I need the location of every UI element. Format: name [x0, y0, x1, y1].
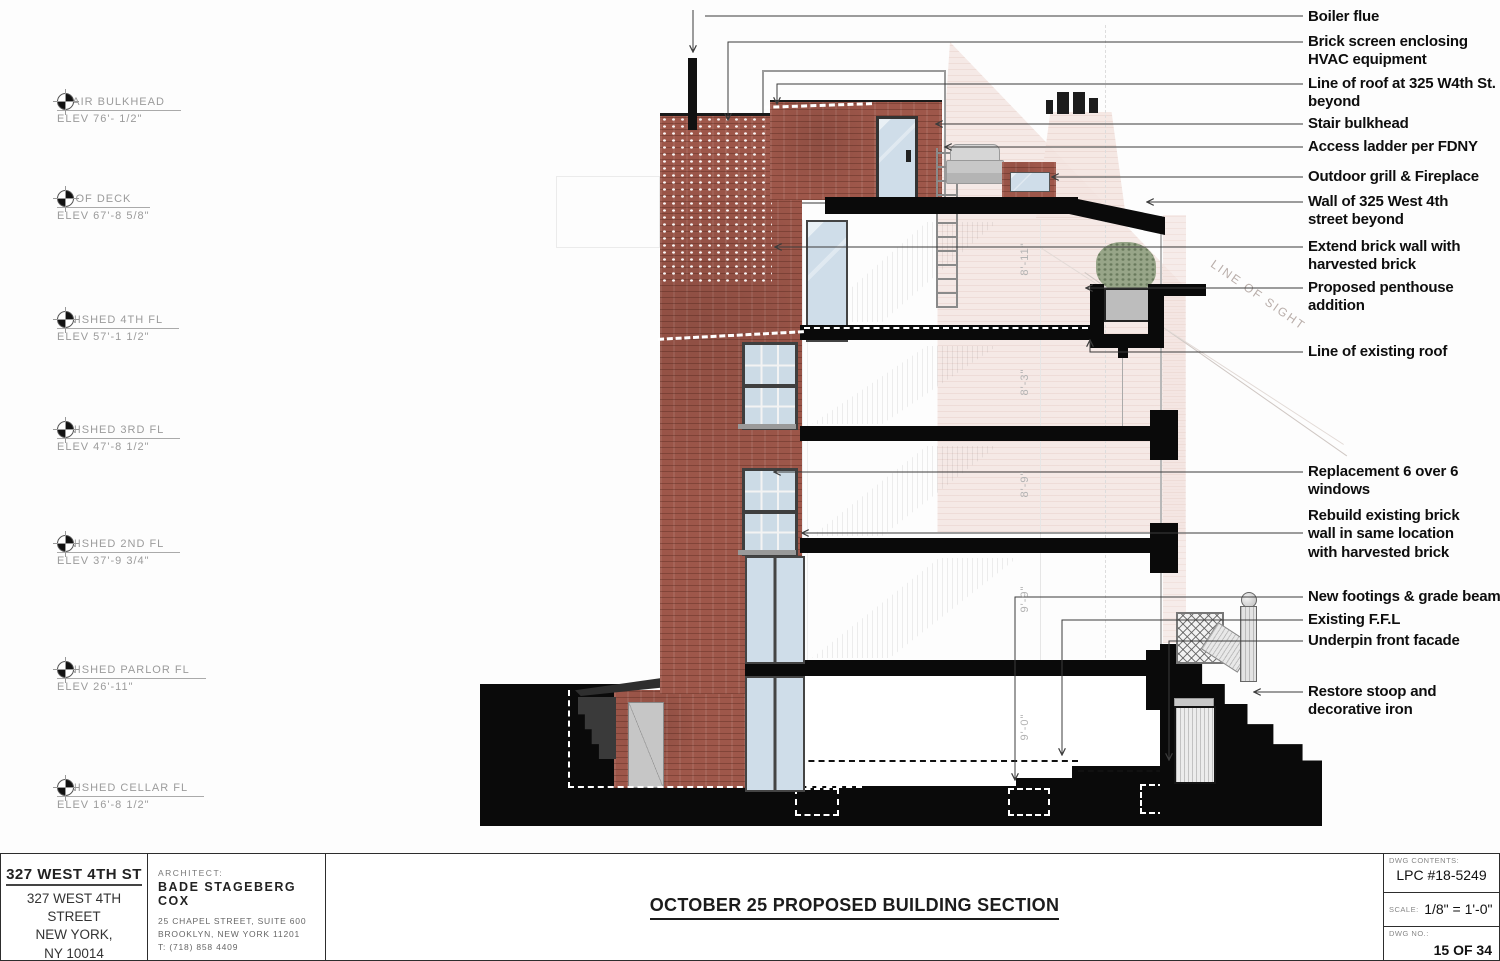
bulkhead-glass-door: [876, 116, 918, 202]
rear-cellar-door: [628, 702, 664, 788]
chimney-pot-icon: [1057, 92, 1069, 114]
scale-value: 1/8" = 1'-0": [1423, 899, 1494, 919]
penthouse-roof-arm: [1164, 284, 1206, 296]
elevation-marker: ROOF DECK ELEV 67'-8 5/8": [57, 181, 150, 222]
project-address: 327 WEST 4TH STREET NEW YORK, NY 10014: [1, 890, 147, 961]
drawing-sheet: LINE OF SIGHT: [0, 0, 1500, 961]
dwg-no-row: DWG NO.: 15 OF 34: [1384, 927, 1499, 960]
floor-height-dimension: 9'-9": [1019, 562, 1031, 636]
footing-box: [1008, 788, 1050, 816]
elevation-value: ELEV 76'- 1/2": [57, 111, 181, 125]
line-of-sight-label: LINE OF SIGHT: [1208, 257, 1308, 333]
elevation-marker: FINISHED PARLOR FL ELEV 26'-11": [57, 652, 206, 693]
elevation-value: ELEV 16'-8 1/2": [57, 797, 204, 811]
address-line: 327 WEST 4TH: [1, 890, 147, 908]
foundation-dashed-line: [568, 690, 570, 788]
architect-phone: T: (718) 858 4409: [158, 941, 325, 954]
elevation-label: FINISHED 4TH FL: [57, 314, 179, 329]
bearing-block: [1150, 410, 1178, 460]
elevation-marker: STAIR BULKHEAD ELEV 76'- 1/2": [57, 84, 181, 125]
elevation-datum-icon: [57, 421, 74, 438]
chimney-pot-icon: [1046, 100, 1053, 114]
annotation-label: Restore stoop and decorative iron: [1308, 683, 1500, 720]
elevation-value: ELEV 37'-9 3/4": [57, 553, 180, 567]
elevation-datum-icon: [57, 779, 74, 796]
elevation-value: ELEV 57'-1 1/2": [57, 329, 179, 343]
drawing-info-cell: DWG CONTENTS: LPC #18-5249 SCALE: 1/8" =…: [1384, 854, 1499, 960]
architect-address: 25 CHAPEL STREET, SUITE 600 BROOKLYN, NE…: [158, 915, 325, 953]
shrub: [1096, 242, 1156, 292]
dwg-contents-label: DWG CONTENTS:: [1389, 856, 1494, 865]
scale-row: SCALE: 1/8" = 1'-0": [1384, 893, 1499, 927]
drawing-title: OCTOBER 25 PROPOSED BUILDING SECTION: [650, 895, 1060, 920]
floor-height-dimension: 9'-0": [1019, 690, 1031, 764]
ffl-dashed-line: [778, 760, 1078, 762]
ffl-dashed-line: [1078, 770, 1172, 772]
annotation-label: New footings & grade beam: [1308, 588, 1500, 606]
window-sill: [738, 550, 796, 555]
elevation-value: ELEV 26'-11": [57, 679, 206, 693]
elevation-marker: FINISHED CELLAR FL ELEV 16'-8 1/2": [57, 770, 204, 811]
door-handle-icon: [906, 150, 911, 162]
elevation-marker: FINISHED 2ND FL ELEV 37'-9 3/4": [57, 526, 180, 567]
window-sill: [738, 424, 796, 429]
parlor-floor-slab: [745, 660, 1160, 676]
annotation-label: Line of existing roof: [1308, 343, 1500, 361]
neighbor-roof-outline: [556, 176, 660, 248]
planter: [1104, 288, 1152, 322]
architect-address-line: 25 CHAPEL STREET, SUITE 600: [158, 915, 325, 928]
annotation-label: Access ladder per FDNY: [1308, 138, 1500, 156]
third-floor-slab: [800, 538, 1156, 553]
annotation-label: Extend brick wall with harvested brick: [1308, 238, 1500, 275]
floor-height-dimension: 8'-11": [1019, 222, 1031, 296]
architect-name: BADE STAGEBERG COX: [158, 880, 325, 908]
elevation-datum-icon: [57, 311, 74, 328]
double-hung-window: [742, 468, 798, 556]
column-line: [1122, 358, 1123, 426]
fireplace-opening: [1010, 172, 1050, 192]
chimney-pot-icon: [1089, 98, 1098, 113]
elevation-value: ELEV 47'-8 1/2": [57, 439, 180, 453]
dwg-no-value: 15 OF 34: [1389, 938, 1494, 958]
project-name: 327 WEST 4TH ST: [6, 866, 142, 886]
elevation-datum-icon: [57, 661, 74, 678]
annotation-label: Existing F.F.L: [1308, 611, 1500, 629]
penthouse-rear-glazing: [806, 220, 848, 342]
elevation-datum-icon: [57, 190, 74, 207]
address-line: NY 10014: [1, 945, 147, 961]
floor-height-dimension: 8'-3": [1019, 345, 1031, 419]
architect-address-line: BROOKLYN, NEW YORK 11201: [158, 928, 325, 941]
elevation-marker: FINISHED 3RD FL ELEV 47'-8 1/2": [57, 412, 180, 453]
property-line: [1105, 25, 1106, 763]
elevation-marker: FINISHED 4TH FL ELEV 57'-1 1/2": [57, 302, 179, 343]
address-line: STREET: [1, 908, 147, 926]
elevation-label: FINISHED 2ND FL: [57, 538, 180, 553]
stair-flight: [812, 558, 1017, 658]
drawing-title-cell: OCTOBER 25 PROPOSED BUILDING SECTION: [326, 854, 1384, 960]
floor-height-dimension: 8'-9": [1019, 447, 1031, 521]
bearing-block: [1150, 523, 1178, 573]
boiler-flue-pipe: [688, 58, 697, 130]
fourth-floor-slab: [800, 426, 1156, 441]
annotation-label: Underpin front facade: [1308, 632, 1500, 650]
annotation-label: Proposed penthouse addition: [1308, 279, 1500, 316]
existing-roof-dashed: [804, 327, 1088, 329]
under-stoop-door: [1174, 706, 1216, 784]
dwg-contents-row: DWG CONTENTS: LPC #18-5249: [1384, 854, 1499, 893]
scale-label: SCALE:: [1389, 905, 1419, 914]
elevation-label: FINISHED 3RD FL: [57, 424, 180, 439]
elevation-datum-icon: [57, 93, 74, 110]
rear-glass-doors-parlor: [745, 556, 805, 664]
architect-label: ARCHITECT:: [158, 868, 325, 878]
outdoor-grill-body: [946, 160, 1004, 184]
elevation-datum-icon: [57, 535, 74, 552]
elevation-value: ELEV 67'-8 5/8": [57, 208, 150, 222]
penthouse-parapet: [1090, 334, 1164, 348]
elevation-label: FINISHED CELLAR FL: [57, 782, 204, 797]
architect-cell: ARCHITECT: BADE STAGEBERG COX 25 CHAPEL …: [148, 854, 326, 960]
project-cell: 327 WEST 4TH ST 327 WEST 4TH STREET NEW …: [1, 854, 148, 960]
double-hung-window: [742, 342, 798, 430]
footing-box: [795, 788, 839, 816]
dwg-no-label: DWG NO.:: [1389, 929, 1494, 938]
dwg-contents-value: LPC #18-5249: [1389, 865, 1494, 885]
newel-post: [1240, 606, 1257, 682]
column-stub: [1118, 348, 1128, 358]
annotation-label: Wall of 325 West 4th street beyond: [1308, 193, 1500, 230]
annotation-label: Brick screen enclosing HVAC equipment: [1308, 33, 1500, 70]
annotation-label: Replacement 6 over 6 windows: [1308, 463, 1500, 500]
address-line: NEW YORK,: [1, 926, 147, 944]
annotation-label: Rebuild existing brick wall in same loca…: [1308, 507, 1500, 562]
elevation-label: FINISHED PARLOR FL: [57, 664, 206, 679]
annotation-label: Outdoor grill & Fireplace: [1308, 168, 1500, 186]
annotation-label: Boiler flue: [1308, 8, 1500, 26]
title-block: 327 WEST 4TH ST 327 WEST 4TH STREET NEW …: [0, 853, 1500, 961]
annotation-label: Stair bulkhead: [1308, 115, 1500, 133]
roof-deck-slab: [825, 197, 1078, 214]
elevation-label: STAIR BULKHEAD: [57, 96, 181, 111]
rear-glass-doors-garden: [745, 676, 805, 792]
chimney-pot-icon: [1073, 92, 1085, 114]
annotation-label: Line of roof at 325 W4th St. beyond: [1308, 75, 1500, 112]
brick-screen-hvac: [660, 116, 772, 284]
